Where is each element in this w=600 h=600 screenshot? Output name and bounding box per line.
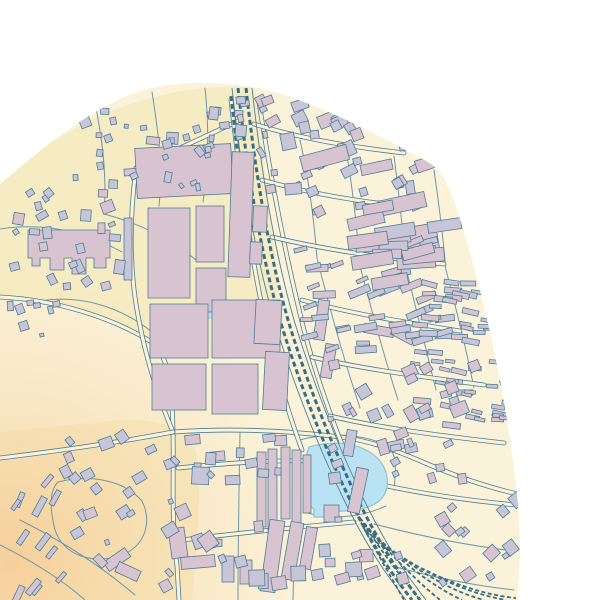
building [150,304,208,358]
building [445,359,455,363]
building [208,107,219,121]
building [225,475,240,485]
building [110,117,117,125]
building [98,223,105,234]
building [39,242,48,251]
building [146,136,160,145]
building [109,180,118,189]
building [473,330,485,334]
building [258,469,269,478]
building [281,447,290,519]
building [181,555,216,570]
building [245,458,258,469]
building [124,124,128,128]
building [357,341,370,345]
building [275,468,281,475]
building [168,499,174,505]
building [291,566,306,581]
building [39,333,44,337]
building [80,210,91,222]
building [436,463,445,472]
building [262,131,268,139]
building [313,291,335,299]
map-viewport[interactable] [0,0,600,600]
building [310,130,319,139]
building [140,125,147,130]
building [254,521,264,533]
building [428,349,443,355]
building [164,172,172,183]
building [76,243,86,254]
building [135,144,233,199]
building [325,558,335,567]
building [185,434,201,445]
building [191,467,209,485]
building [98,189,108,197]
building [254,299,282,344]
building [478,324,490,328]
building [335,517,342,523]
building [205,452,216,465]
building [209,135,214,142]
building [114,259,126,274]
building [461,281,476,286]
building [303,455,311,513]
building [487,384,498,388]
building [249,570,265,586]
building [97,162,104,170]
building [250,242,263,264]
building [212,364,258,414]
building [183,134,190,142]
building [262,433,275,442]
building [73,175,78,181]
building [271,169,278,175]
map-canvas [0,0,600,600]
building [253,206,268,232]
building [42,227,52,239]
building [27,300,34,306]
building [33,302,40,308]
building [12,212,24,225]
building [148,208,190,298]
building [419,330,437,336]
building [96,133,102,138]
building [311,314,328,321]
building [280,132,297,151]
building [265,184,276,194]
building [63,283,71,290]
building [257,452,266,527]
building [319,544,331,557]
building [236,96,246,104]
building [423,291,436,296]
building [457,473,467,484]
building [271,576,287,591]
building [301,318,313,322]
building [219,122,229,130]
building [101,281,112,291]
building [328,472,341,485]
building [7,301,13,311]
building [412,322,428,328]
building [355,346,376,354]
building [109,234,121,242]
building [353,157,362,166]
building [204,152,211,158]
building [152,364,206,410]
building [299,121,311,134]
building [328,359,340,370]
building [328,416,334,422]
building [96,149,103,157]
building [195,183,200,191]
building [53,300,61,307]
building [311,569,324,581]
building [236,448,244,458]
building [262,351,289,410]
building [465,390,476,395]
building [124,218,132,280]
building [429,304,441,308]
building [196,206,224,262]
building [205,146,211,152]
building [29,228,39,235]
building [234,555,247,568]
building [100,108,109,114]
building [235,125,247,137]
building [285,183,302,196]
